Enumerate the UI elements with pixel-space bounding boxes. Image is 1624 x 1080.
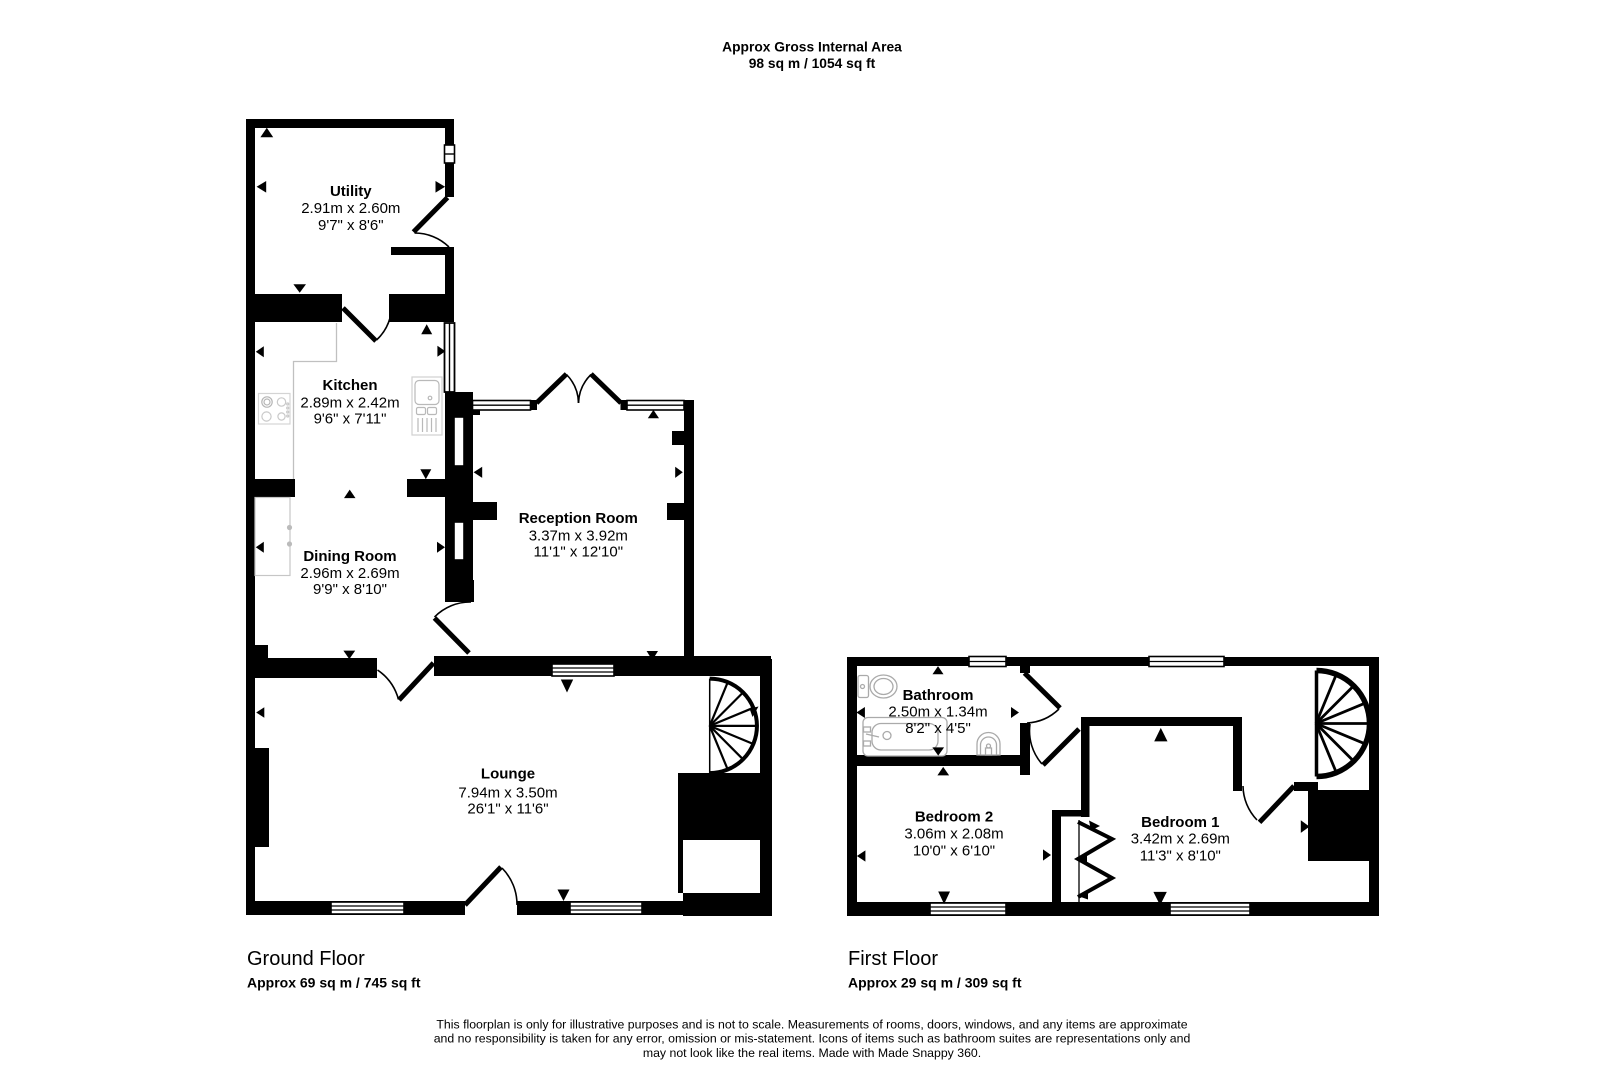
svg-text:First Floor: First Floor: [848, 948, 938, 970]
svg-text:9'6" x 7'11": 9'6" x 7'11": [314, 410, 387, 427]
svg-text:Kitchen: Kitchen: [322, 377, 377, 394]
svg-text:11'1" x 12'10": 11'1" x 12'10": [534, 544, 624, 561]
svg-text:Bathroom: Bathroom: [903, 687, 974, 704]
svg-text:9'7" x 8'6": 9'7" x 8'6": [318, 217, 384, 234]
svg-text:Bedroom 2: Bedroom 2: [915, 809, 993, 826]
svg-text:98 sq m / 1054 sq ft: 98 sq m / 1054 sq ft: [749, 56, 876, 71]
svg-text:11'3" x 8'10": 11'3" x 8'10": [1140, 848, 1221, 865]
svg-text:may not look like the real ite: may not look like the real items. Made w…: [643, 1046, 981, 1060]
svg-text:2.91m x 2.60m: 2.91m x 2.60m: [301, 200, 400, 217]
svg-text:Reception Room: Reception Room: [519, 510, 638, 527]
svg-text:Dining Room: Dining Room: [303, 548, 396, 565]
svg-text:26'1" x 11'6": 26'1" x 11'6": [467, 801, 548, 818]
svg-text:7.94m x 3.50m: 7.94m x 3.50m: [458, 785, 557, 802]
svg-text:Utility: Utility: [330, 183, 372, 200]
svg-text:Lounge: Lounge: [481, 766, 535, 783]
svg-text:Approx 29 sq m / 309 sq ft: Approx 29 sq m / 309 sq ft: [848, 974, 1022, 990]
svg-text:10'0" x 6'10": 10'0" x 6'10": [913, 843, 995, 860]
svg-text:Bedroom 1: Bedroom 1: [1141, 814, 1219, 831]
svg-text:8'2" x 4'5": 8'2" x 4'5": [905, 720, 971, 737]
svg-text:This floorplan is only for ill: This floorplan is only for illustrative …: [436, 1018, 1187, 1032]
svg-text:and no responsibility is taken: and no responsibility is taken for any e…: [434, 1032, 1191, 1046]
svg-text:3.37m x 3.92m: 3.37m x 3.92m: [529, 527, 628, 544]
svg-text:2.50m x 1.34m: 2.50m x 1.34m: [888, 704, 987, 721]
svg-text:2.96m x 2.69m: 2.96m x 2.69m: [300, 565, 399, 582]
svg-text:Approx Gross Internal Area: Approx Gross Internal Area: [722, 40, 902, 55]
svg-text:Ground Floor: Ground Floor: [247, 948, 365, 970]
svg-text:3.06m x 2.08m: 3.06m x 2.08m: [904, 826, 1003, 843]
svg-text:9'9" x 8'10": 9'9" x 8'10": [313, 581, 387, 598]
svg-text:2.89m x 2.42m: 2.89m x 2.42m: [300, 394, 399, 411]
svg-text:3.42m x 2.69m: 3.42m x 2.69m: [1131, 831, 1230, 848]
svg-text:Approx 69 sq m / 745 sq ft: Approx 69 sq m / 745 sq ft: [247, 974, 421, 990]
